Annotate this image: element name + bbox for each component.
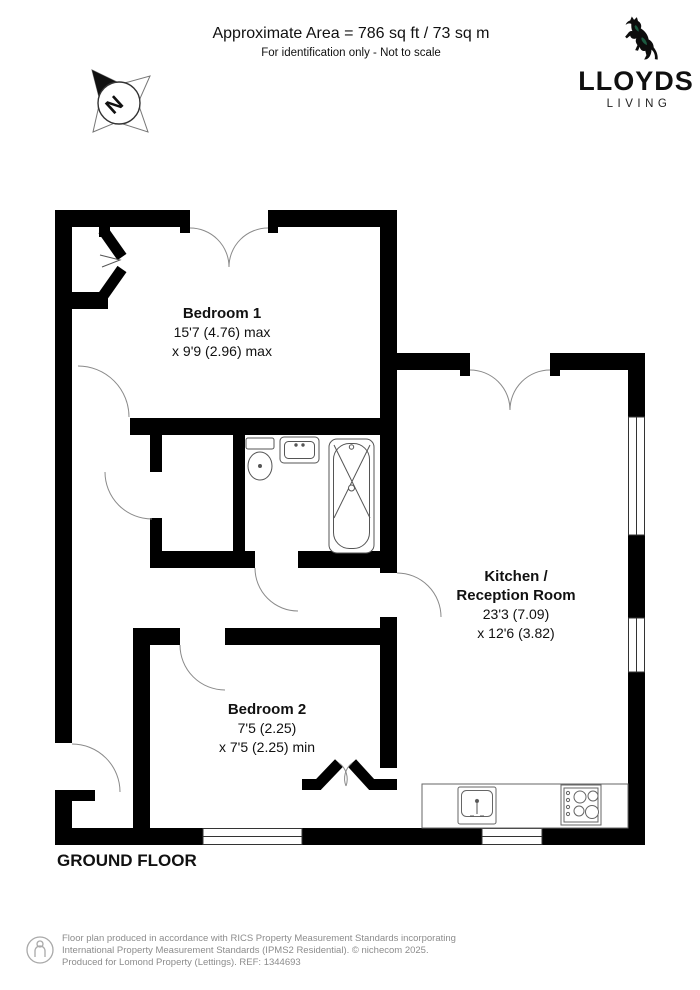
brand-name: LLOYDS	[578, 66, 694, 96]
door-arc-kitchen	[397, 573, 441, 617]
wall	[55, 828, 203, 845]
wall	[380, 370, 397, 573]
french-door-arc	[229, 228, 268, 267]
wall	[380, 353, 465, 370]
kitchen-sink-icon	[458, 787, 496, 824]
wall	[130, 418, 397, 435]
sink-tap	[475, 799, 478, 802]
footer-line-1: Floor plan produced in accordance with R…	[62, 933, 456, 944]
bath-tap	[349, 445, 353, 449]
bath-inner	[334, 444, 370, 549]
room-name: Bedroom 2	[228, 701, 306, 718]
footer-line-3: Produced for Lomond Property (Lettings).…	[62, 957, 301, 968]
wall	[628, 535, 645, 618]
door-jamb	[460, 353, 470, 376]
wall	[225, 628, 397, 645]
footer-line-2: International Property Measurement Stand…	[62, 945, 429, 956]
room-dimension: 15'7 (4.76) max	[174, 324, 271, 340]
wall	[55, 210, 183, 227]
footer: Floor plan produced in accordance with R…	[27, 933, 456, 968]
floorplan-canvas: Approximate Area = 786 sq ft / 73 sq m F…	[0, 0, 700, 990]
room-name: Bedroom 1	[183, 305, 261, 322]
wall	[380, 210, 397, 370]
wall	[133, 628, 180, 645]
approximate-area-text: Approximate Area = 786 sq ft / 73 sq m	[212, 25, 489, 42]
floor-label: GROUND FLOOR	[57, 851, 197, 870]
room-name: Kitchen /	[484, 568, 548, 585]
hob-control	[566, 798, 569, 801]
room-dimension: x 12'6 (3.82)	[477, 625, 554, 641]
wall	[542, 828, 645, 845]
compass-rose: N	[92, 70, 150, 132]
hob-control	[566, 791, 569, 794]
identification-note: For identification only - Not to scale	[261, 47, 441, 59]
corner-angled-wall	[317, 763, 339, 786]
hob-control	[566, 812, 569, 815]
wall	[133, 645, 150, 828]
toilet-icon	[246, 438, 274, 480]
room-dimension: x 7'5 (2.25) min	[219, 739, 315, 755]
person-icon	[27, 937, 53, 963]
hob-burner	[588, 791, 598, 801]
door-arc-entrance	[72, 744, 120, 792]
door-jamb	[550, 353, 560, 376]
wall	[233, 435, 245, 555]
wall	[278, 210, 397, 227]
door-arc-bedroom1	[78, 366, 129, 417]
bath-drain	[349, 485, 355, 491]
basin-icon	[280, 437, 319, 463]
lloyds-living-logo: LLOYDS LIVING	[578, 17, 694, 110]
wall	[628, 672, 645, 845]
door-jamb	[268, 210, 278, 233]
room-name: Reception Room	[456, 587, 575, 604]
door-arc-bathroom	[255, 568, 298, 611]
door-jamb	[180, 210, 190, 233]
hob-burner	[574, 791, 586, 803]
room-dimension: 23'3 (7.09)	[483, 606, 550, 622]
wall-nib	[55, 790, 95, 801]
room-dimension: 7'5 (2.25)	[238, 720, 297, 736]
wall	[55, 210, 72, 743]
bay-angled-wall	[103, 230, 122, 257]
horse-icon	[625, 17, 658, 60]
kitchen-label: Kitchen / Reception Room 23'3 (7.09) x 1…	[456, 568, 575, 641]
door-arc-cupboard	[105, 472, 152, 519]
french-door-arc	[470, 370, 510, 410]
floorplan-page: Approximate Area = 786 sq ft / 73 sq m F…	[0, 0, 700, 990]
kitchen-fixtures	[422, 784, 628, 828]
bay-angled-wall	[103, 269, 122, 296]
basin-tap	[295, 444, 297, 446]
wall	[150, 551, 255, 568]
room-dimension: x 9'9 (2.96) max	[172, 343, 272, 359]
hob-burner	[574, 806, 584, 816]
bedroom2-label: Bedroom 2 7'5 (2.25) x 7'5 (2.25) min	[219, 701, 315, 755]
bath-icon	[329, 439, 374, 553]
french-door-arc	[190, 228, 229, 267]
basin-tap	[302, 444, 304, 446]
basin-inner	[285, 442, 315, 459]
bay-stub-wall	[55, 292, 108, 309]
corner-angled-wall	[352, 763, 373, 786]
wall	[150, 435, 162, 472]
wall	[302, 828, 482, 845]
french-door-arc	[510, 370, 550, 410]
wall	[628, 353, 645, 417]
bedroom1-label: Bedroom 1 15'7 (4.76) max x 9'9 (2.96) m…	[172, 305, 272, 359]
person-icon-body	[35, 946, 45, 957]
bathroom-fixtures	[246, 437, 374, 553]
hob-control	[566, 805, 569, 808]
door-arc-bedroom2	[180, 645, 225, 690]
hob-icon	[561, 785, 601, 825]
toilet-drain	[259, 465, 262, 468]
hob-burner	[586, 806, 599, 819]
brand-division: LIVING	[607, 98, 672, 110]
toilet-cistern	[246, 438, 274, 449]
